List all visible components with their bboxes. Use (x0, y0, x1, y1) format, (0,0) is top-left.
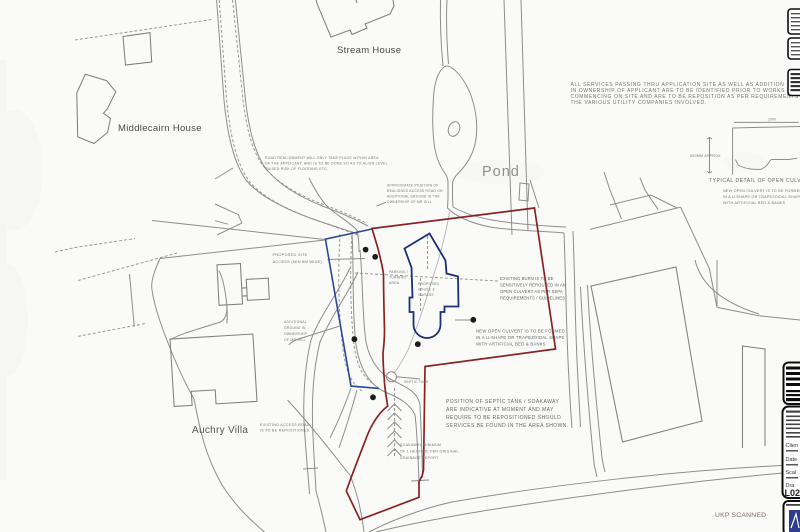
svg-text:REQUIRE TO BE REPOSITIONED SHO: REQUIRE TO BE REPOSITIONED SHOULD (446, 415, 561, 421)
svg-text:OF 1 HECTARE PER ORIGINAL: OF 1 HECTARE PER ORIGINAL (400, 450, 459, 454)
svg-text:DRAINAGE REPORT: DRAINAGE REPORT (400, 456, 439, 460)
svg-text:GROUND IN: GROUND IN (284, 326, 306, 330)
svg-text:IN A U-SHAPE OR TRAPEZOIDAL SH: IN A U-SHAPE OR TRAPEZOIDAL SHAPE (723, 195, 800, 199)
svg-text:OWNERSHIP: OWNERSHIP (284, 332, 308, 336)
svg-text:TYPICAL DETAIL OF OPEN CULVERT: TYPICAL DETAIL OF OPEN CULVERT (709, 178, 800, 184)
svg-text:REALIGNED ACCESS ROAD ON: REALIGNED ACCESS ROAD ON (387, 189, 443, 193)
svg-text:REQUIREMENTS / GUIDELINES: REQUIREMENTS / GUIDELINES (500, 296, 565, 301)
svg-text:HOUSE &: HOUSE & (418, 288, 435, 292)
svg-text:Pond: Pond (482, 164, 520, 180)
svg-text:PROPOSED: PROPOSED (418, 282, 440, 286)
svg-text:SEPTIC TANK: SEPTIC TANK (404, 380, 429, 384)
svg-text:Clien: Clien (786, 443, 799, 449)
svg-text:WITH ARTIFICIAL BED & BANKS: WITH ARTIFICIAL BED & BANKS (476, 342, 546, 347)
svg-text:Middlecairn House: Middlecairn House (118, 123, 202, 134)
svg-text:EXISTING BURN IS TO BE: EXISTING BURN IS TO BE (500, 276, 554, 281)
svg-text:APPROXIMATE POSITION OF: APPROXIMATE POSITION OF (387, 184, 438, 188)
svg-text:ARE INDICATIVE AT MOMENT AND M: ARE INDICATIVE AT MOMENT AND MAY (446, 407, 554, 413)
svg-text:SERVICES BE FOUND IN THE AREA: SERVICES BE FOUND IN THE AREA SHOWN. (446, 423, 569, 429)
svg-text:SENSITIVELY REROUTED IN AN: SENSITIVELY REROUTED IN AN (500, 283, 566, 288)
svg-text:L02: L02 (785, 488, 800, 498)
svg-text:TURNING: TURNING (389, 276, 406, 280)
svg-text:OWNERSHIP OF MR GILL: OWNERSHIP OF MR GILL (387, 200, 432, 204)
svg-text:AREA: AREA (389, 281, 400, 285)
svg-text:ACCESS (MIN 6M WIDE): ACCESS (MIN 6M WIDE) (273, 259, 323, 264)
svg-text:RAISED RISK OF FLOODING ETC.: RAISED RISK OF FLOODING ETC. (265, 167, 328, 171)
svg-text:Scal: Scal (786, 470, 797, 476)
svg-text:NEW OPEN CULVERT IS TO BE FORM: NEW OPEN CULVERT IS TO BE FORMED (476, 329, 565, 334)
svg-text:ROAD REALIGNMENT WILL ONLY TAK: ROAD REALIGNMENT WILL ONLY TAKE PLACE WI… (265, 156, 379, 160)
svg-text:Auchry Villa: Auchry Villa (192, 425, 248, 436)
svg-text:OF MR GILL: OF MR GILL (284, 338, 306, 342)
svg-text:THE VARIOUS UTILITY COMPANI: THE VARIOUS UTILITY COMPANIES INVOLVED. (571, 100, 707, 106)
svg-text:UKP SCANNED: UKP SCANNED (715, 512, 766, 519)
svg-text:Date: Date (786, 457, 798, 463)
svg-text:2000: 2000 (768, 118, 776, 122)
svg-text:OF THE APPLICANT, AND IS TO BE: OF THE APPLICANT, AND IS TO BE DONE SO A… (265, 162, 388, 166)
svg-text:PROPOSED SITE: PROPOSED SITE (273, 252, 308, 257)
svg-text:PARKING /: PARKING / (389, 270, 408, 274)
svg-text:ADDITIONAL: ADDITIONAL (284, 320, 307, 324)
svg-text:EXISTING ACCESS ROAD: EXISTING ACCESS ROAD (260, 423, 310, 427)
svg-text:SOAKAWAY MINIMUM: SOAKAWAY MINIMUM (400, 443, 441, 447)
svg-text:NEW OPEN CULVERT IS TO BE FORM: NEW OPEN CULVERT IS TO BE FORMED (723, 189, 800, 193)
svg-text:Stream House: Stream House (337, 45, 401, 56)
svg-text:IN A U-SHAPE OR TRAPEZOIDAL SH: IN A U-SHAPE OR TRAPEZOIDAL SHAPE (476, 335, 565, 340)
svg-text:ADDITIONAL GROUND IN THE: ADDITIONAL GROUND IN THE (387, 195, 440, 199)
svg-text:OPEN CULVERT AS PER SEPA: OPEN CULVERT AS PER SEPA (500, 289, 563, 294)
svg-text:IS TO BE REPOSITIONED: IS TO BE REPOSITIONED (260, 429, 310, 433)
svg-text:GARAGE: GARAGE (418, 293, 434, 297)
svg-text:WITH ARTIFICIAL BED & BANKS: WITH ARTIFICIAL BED & BANKS (723, 201, 786, 205)
svg-text:POSITION OF SEPTIC TANK / SOAK: POSITION OF SEPTIC TANK / SOAKAWAY (446, 399, 559, 405)
svg-text:600MM APPROX: 600MM APPROX (690, 154, 721, 158)
